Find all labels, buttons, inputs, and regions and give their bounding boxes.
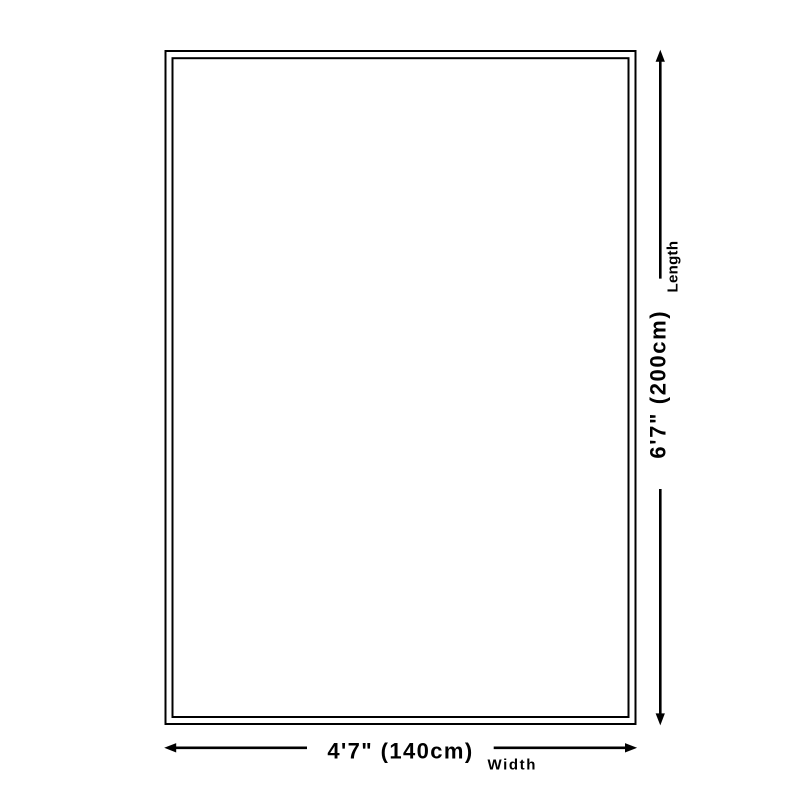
svg-text:Width: Width bbox=[488, 757, 538, 774]
svg-text:6'7" (200cm): 6'7" (200cm) bbox=[646, 310, 671, 459]
svg-text:4'7" (140cm): 4'7" (140cm) bbox=[327, 738, 473, 763]
svg-text:Length: Length bbox=[665, 241, 682, 293]
